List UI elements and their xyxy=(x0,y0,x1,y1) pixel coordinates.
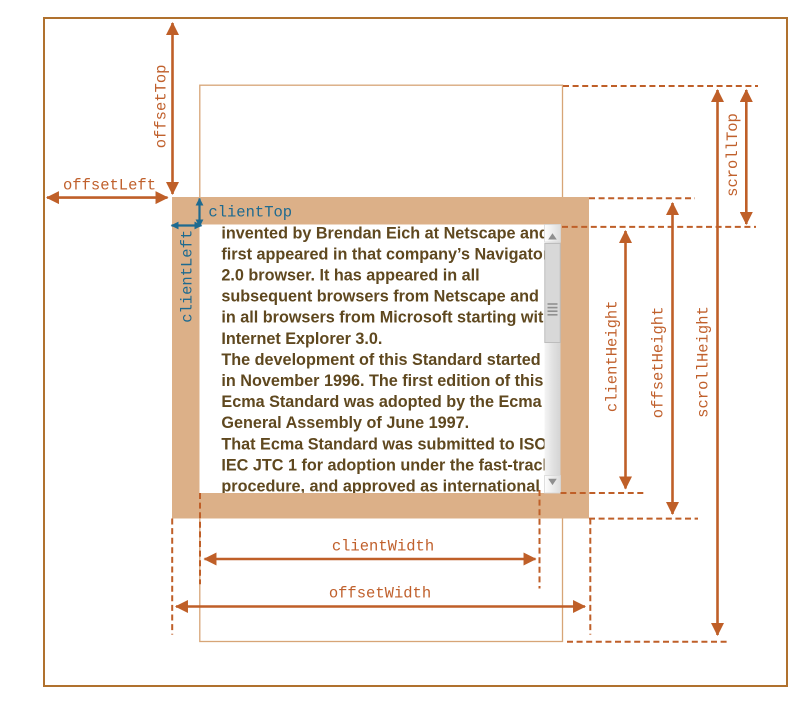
svg-text:offsetWidth: offsetWidth xyxy=(329,585,431,603)
svg-text:offsetHeight: offsetHeight xyxy=(650,307,668,419)
svg-text:in November 1996. The first ed: in November 1996. The first edition of t… xyxy=(221,372,543,390)
svg-text:offsetLeft: offsetLeft xyxy=(63,177,156,195)
svg-text:General Assembly of June 1997.: General Assembly of June 1997. xyxy=(221,414,469,432)
svg-text:2.0 browser. It has appeared i: 2.0 browser. It has appeared in all xyxy=(221,267,479,285)
svg-text:Ecma Standard was adopted by t: Ecma Standard was adopted by the Ecma xyxy=(221,393,542,411)
svg-text:offsetTop: offsetTop xyxy=(153,65,171,149)
svg-text:That Ecma Standard was submitt: That Ecma Standard was submitted to ISO/ xyxy=(221,435,552,453)
svg-text:The development of this Standa: The development of this Standard started xyxy=(221,351,540,369)
svg-text:clientTop: clientTop xyxy=(208,203,292,221)
svg-text:invented by Brendan Eich at Ne: invented by Brendan Eich at Netscape and xyxy=(221,224,548,242)
svg-text:scrollTop: scrollTop xyxy=(724,113,742,197)
svg-text:Internet Explorer 3.0.: Internet Explorer 3.0. xyxy=(221,330,382,348)
svg-text:clientWidth: clientWidth xyxy=(332,538,434,556)
svg-text:first appeared in that company: first appeared in that company’s Navigat… xyxy=(221,245,549,263)
svg-text:in all browsers from Microsoft: in all browsers from Microsoft starting … xyxy=(221,309,553,327)
svg-text:clientHeight: clientHeight xyxy=(604,300,622,412)
svg-text:procedure, and approved as int: procedure, and approved as international xyxy=(221,478,539,496)
svg-text:subsequent browsers from Netsc: subsequent browsers from Netscape and xyxy=(221,288,539,306)
svg-text:scrollHeight: scrollHeight xyxy=(694,306,712,418)
svg-text:IEC JTC 1 for adoption under t: IEC JTC 1 for adoption under the fast-tr… xyxy=(221,456,552,474)
svg-text:clientLeft: clientLeft xyxy=(178,230,196,323)
